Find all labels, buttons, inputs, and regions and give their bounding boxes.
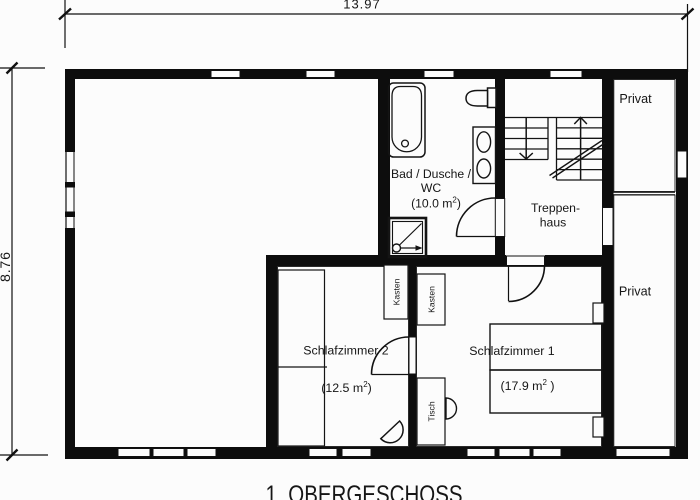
- svg-text:1. OBERGESCHOSS: 1. OBERGESCHOSS: [265, 480, 462, 500]
- svg-text:(17.9 m2 ): (17.9 m2 ): [500, 378, 554, 393]
- svg-text:Schlafzimmer 1: Schlafzimmer 1: [469, 344, 554, 358]
- svg-text:Schlafzimmer 2: Schlafzimmer 2: [303, 344, 388, 358]
- svg-text:Kasten: Kasten: [392, 278, 402, 305]
- svg-text:Treppen-: Treppen-: [531, 201, 580, 215]
- svg-text:WC: WC: [421, 181, 442, 195]
- svg-text:Kasten: Kasten: [427, 286, 437, 313]
- svg-text:13.97: 13.97: [343, 0, 381, 12]
- svg-text:haus: haus: [540, 216, 566, 230]
- svg-text:Tisch: Tisch: [427, 401, 437, 421]
- svg-text:Privat: Privat: [619, 92, 652, 106]
- svg-text:Privat: Privat: [619, 285, 652, 299]
- svg-text:8.76: 8.76: [0, 251, 14, 282]
- svg-text:Bad / Dusche /: Bad / Dusche /: [391, 167, 472, 181]
